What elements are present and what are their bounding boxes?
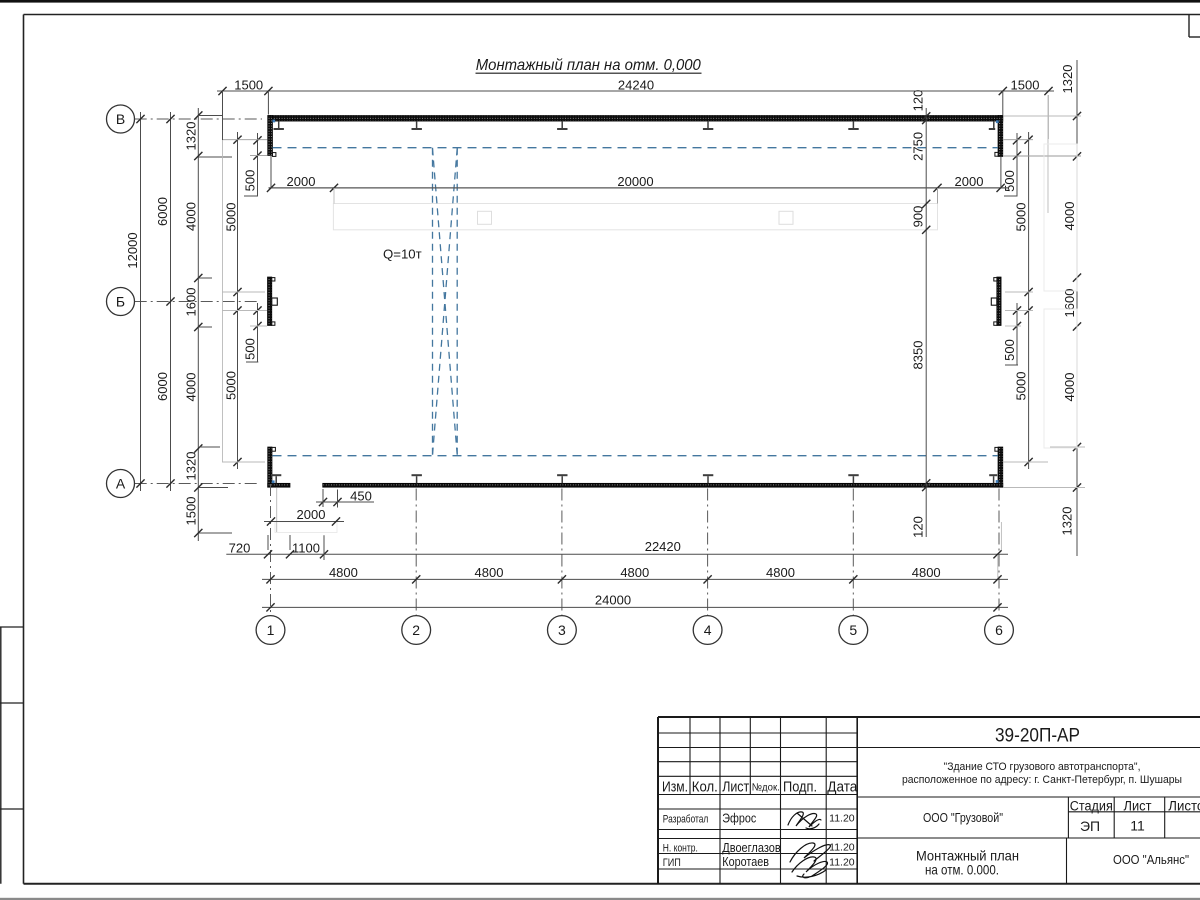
svg-text:900: 900 — [911, 206, 926, 228]
svg-text:на отм. 0.000.: на отм. 0.000. — [925, 862, 999, 878]
svg-text:Кол.: Кол. — [692, 779, 718, 796]
svg-text:20000: 20000 — [617, 174, 653, 189]
svg-text:120: 120 — [911, 516, 926, 538]
svg-text:500: 500 — [243, 338, 258, 360]
svg-text:5: 5 — [849, 622, 857, 638]
svg-text:расположенное по адресу: г. Са: расположенное по адресу: г. Санкт-Петерб… — [902, 774, 1182, 786]
svg-text:4: 4 — [704, 622, 712, 638]
svg-text:6000: 6000 — [155, 372, 170, 401]
svg-text:1: 1 — [267, 622, 275, 638]
svg-text:Б: Б — [116, 294, 125, 310]
svg-text:А: А — [116, 476, 126, 492]
svg-text:5000: 5000 — [224, 203, 239, 232]
svg-text:39-20П-АР: 39-20П-АР — [995, 726, 1080, 747]
svg-text:500: 500 — [243, 170, 258, 192]
svg-text:4000: 4000 — [1062, 373, 1077, 402]
svg-text:Эфрос: Эфрос — [722, 812, 756, 826]
svg-text:450: 450 — [350, 489, 372, 504]
svg-text:ГИП: ГИП — [663, 857, 681, 869]
svg-text:Q=10т: Q=10т — [383, 246, 422, 261]
svg-text:11.20: 11.20 — [829, 813, 855, 825]
svg-text:5000: 5000 — [1014, 203, 1029, 232]
svg-text:Монтажный план на отм. 0,000: Монтажный план на отм. 0,000 — [476, 57, 701, 74]
svg-text:1100: 1100 — [292, 541, 320, 556]
svg-text:Изм.: Изм. — [662, 779, 688, 796]
svg-text:6: 6 — [995, 622, 1003, 638]
svg-text:12000: 12000 — [125, 232, 140, 268]
svg-text:1320: 1320 — [1060, 65, 1075, 94]
svg-text:120: 120 — [911, 90, 926, 112]
svg-text:4800: 4800 — [329, 565, 358, 580]
svg-text:11.20: 11.20 — [829, 842, 855, 854]
svg-text:1500: 1500 — [234, 78, 263, 93]
svg-text:22420: 22420 — [645, 539, 681, 554]
svg-text:Коротаев: Коротаев — [722, 855, 769, 869]
svg-text:4000: 4000 — [183, 373, 198, 402]
svg-text:720: 720 — [229, 540, 251, 555]
svg-text:1600: 1600 — [183, 288, 198, 317]
svg-text:2000: 2000 — [955, 174, 984, 189]
svg-text:Н. контр.: Н. контр. — [663, 843, 698, 855]
svg-text:1600: 1600 — [1062, 289, 1077, 318]
svg-text:Лист: Лист — [722, 779, 749, 796]
svg-text:4800: 4800 — [912, 565, 941, 580]
svg-text:500: 500 — [1002, 339, 1017, 361]
svg-text:8350: 8350 — [911, 341, 926, 370]
svg-text:3: 3 — [558, 622, 566, 638]
svg-text:Листо: Листо — [1168, 799, 1200, 814]
svg-text:4800: 4800 — [475, 565, 504, 580]
svg-text:Дата: Дата — [827, 779, 858, 796]
svg-text:6000: 6000 — [155, 197, 170, 226]
svg-text:1500: 1500 — [1011, 78, 1040, 93]
svg-text:ООО "Грузовой": ООО "Грузовой" — [923, 811, 1003, 825]
svg-text:2000: 2000 — [287, 174, 316, 189]
svg-text:1320: 1320 — [1060, 507, 1075, 536]
svg-text:4000: 4000 — [183, 202, 198, 231]
svg-text:Лист: Лист — [1124, 799, 1152, 814]
svg-text:1320: 1320 — [183, 122, 198, 151]
svg-text:Стадия: Стадия — [1070, 799, 1113, 814]
svg-text:1500: 1500 — [183, 497, 198, 526]
svg-text:№док.: №док. — [752, 782, 780, 794]
svg-text:Разработал: Разработал — [663, 814, 709, 826]
svg-text:2: 2 — [412, 622, 420, 638]
svg-text:2750: 2750 — [911, 132, 926, 161]
svg-text:11: 11 — [1130, 818, 1145, 834]
svg-text:500: 500 — [1002, 170, 1017, 192]
svg-text:24000: 24000 — [595, 593, 631, 608]
svg-text:1320: 1320 — [183, 452, 198, 481]
svg-text:ООО "Альянс": ООО "Альянс" — [1113, 852, 1189, 867]
svg-text:11.20: 11.20 — [829, 857, 855, 869]
svg-text:Двоеглазов: Двоеглазов — [722, 841, 781, 855]
svg-text:В: В — [116, 111, 125, 127]
svg-text:4800: 4800 — [620, 565, 649, 580]
svg-text:5000: 5000 — [1014, 372, 1029, 401]
svg-text:ЭП: ЭП — [1080, 818, 1100, 834]
svg-text:4000: 4000 — [1062, 202, 1077, 231]
svg-text:4800: 4800 — [766, 565, 795, 580]
svg-text:5000: 5000 — [224, 371, 239, 400]
svg-text:24240: 24240 — [618, 78, 654, 93]
svg-text:2000: 2000 — [297, 507, 326, 522]
svg-text:"Здание СТО грузового автотран: "Здание СТО грузового автотранспорта", — [944, 761, 1141, 773]
svg-text:Подп.: Подп. — [783, 779, 817, 796]
